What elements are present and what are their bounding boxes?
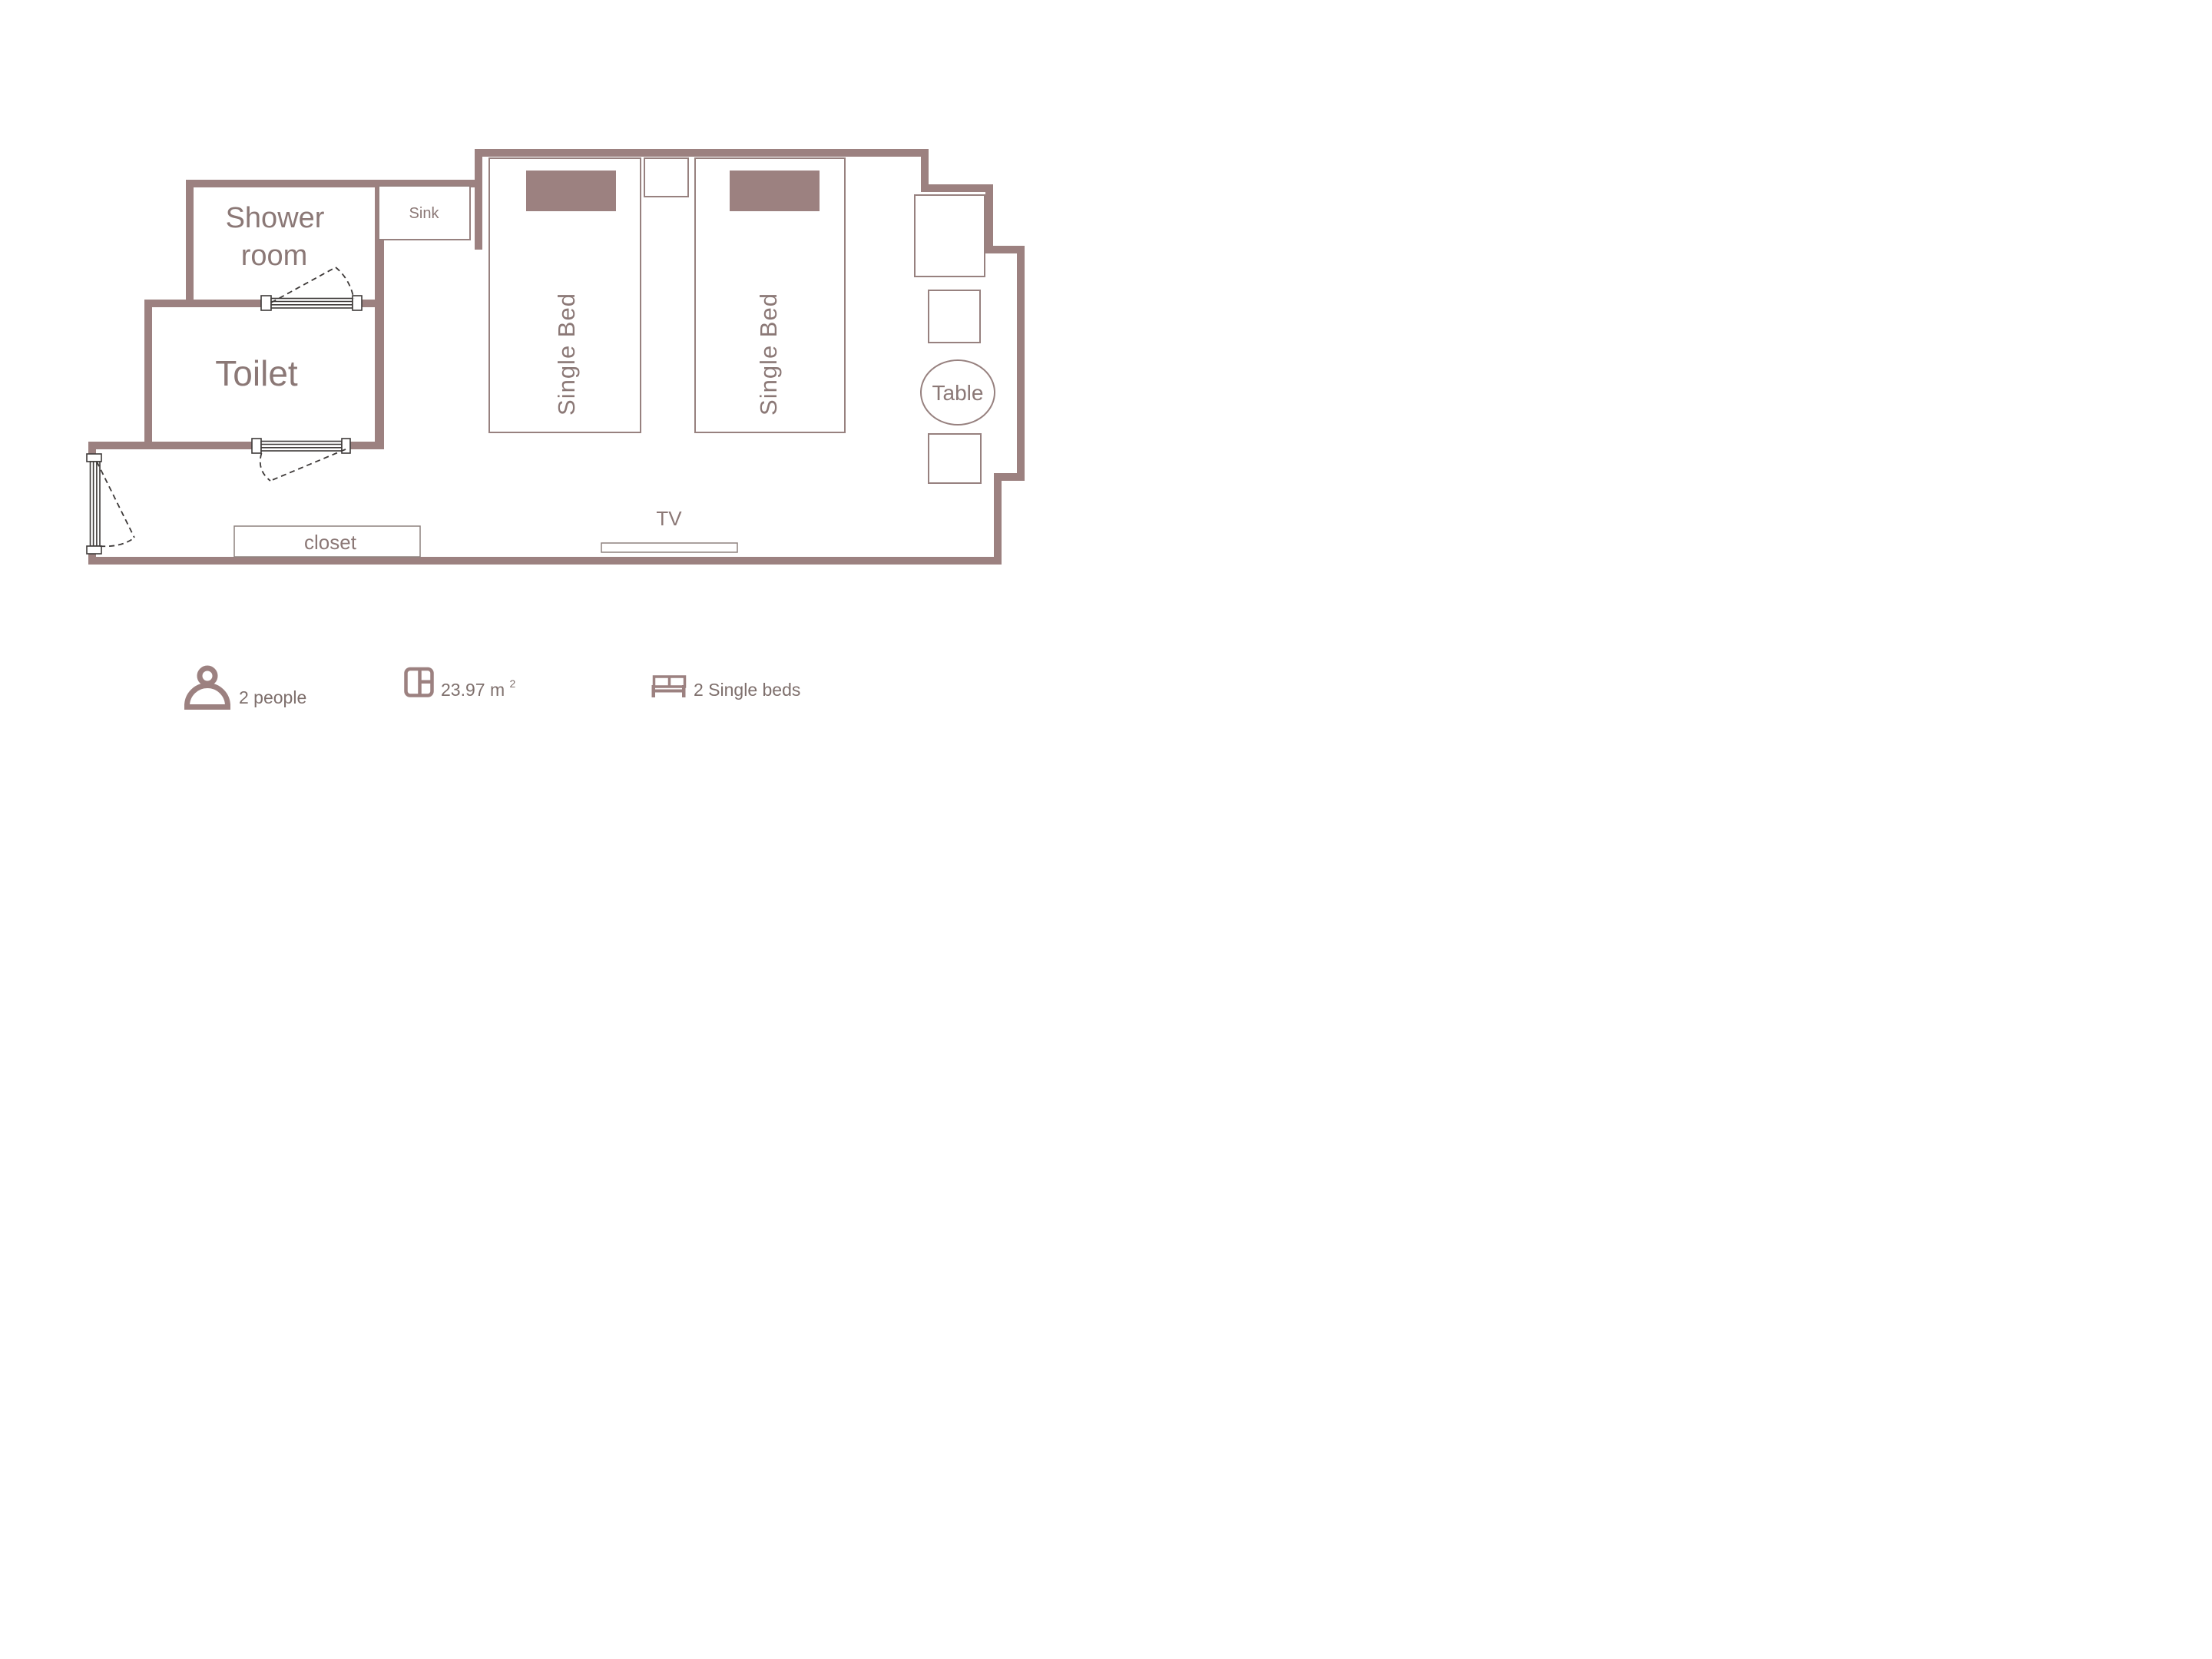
toilet-door-leaf (261, 442, 342, 452)
doors (87, 296, 362, 554)
wall-main-left (475, 149, 482, 250)
shower-room-label-line2: room (241, 240, 308, 272)
bed-icon-leg-left (652, 685, 656, 697)
shower-room-label-line1: Shower (226, 202, 325, 234)
bed-icon-mattress-bar (655, 690, 682, 693)
floor-plan-drawing: Shower room Toilet Sink Single Bed Singl… (0, 0, 1106, 829)
legend-area-value: 23.97 (441, 680, 485, 700)
wall-toilet-bottom-left (88, 442, 252, 449)
legend-beds-label: 2 Single beds (694, 680, 800, 700)
toilet-door-swing-line (270, 449, 346, 481)
bed-right-pillow (730, 171, 820, 211)
legend: 2 people 23.97 m 2 2 Single beds (184, 668, 800, 707)
wall-hall-left-lower (88, 554, 96, 565)
legend-area-unit-exponent: 2 (510, 677, 516, 690)
wall-bottom (88, 557, 1002, 565)
shower-door-swing-arc (336, 267, 354, 299)
legend-area-label: 23.97 m 2 (441, 677, 516, 700)
table-label: Table (932, 381, 984, 405)
wall-divider-left (144, 300, 271, 307)
bed-left-pillow (526, 171, 616, 211)
entrance-door-swing-arc (100, 538, 134, 546)
toilet-door-jamb-left (252, 439, 261, 453)
shower-door-leaf (271, 299, 353, 309)
bed-icon-leg-right (682, 685, 686, 697)
wall-lower-right (994, 473, 1002, 565)
sink-label: Sink (409, 205, 440, 222)
tv-stand (601, 543, 737, 552)
wall-step1-horizontal (921, 184, 993, 192)
toilet-label: Toilet (215, 353, 298, 393)
window-bay-unit-large (915, 195, 985, 276)
chair-lower (929, 434, 981, 483)
bed-icon (652, 677, 686, 697)
tv-label: TV (656, 507, 682, 530)
wall-step2-vertical (985, 184, 993, 253)
wall-toilet-left (144, 300, 152, 449)
shower-door-jamb-right (353, 296, 362, 310)
bed-left-label: Single Bed (553, 293, 580, 416)
closet-label: closet (304, 531, 357, 554)
shower-door-swing-line (271, 267, 336, 303)
bed-right-label: Single Bed (755, 293, 782, 416)
wall-bay-right (1017, 246, 1025, 481)
entrance-door-jamb-bottom (87, 546, 101, 554)
legend-area-unit: m (490, 680, 505, 700)
furniture-outlines (379, 158, 995, 483)
floor-plan-icon (406, 669, 432, 696)
shower-door-jamb-left (261, 296, 271, 310)
person-icon-head (200, 668, 215, 684)
entrance-door-jamb-top (87, 454, 101, 462)
entrance-door-leaf (91, 462, 101, 546)
wall-main-top (475, 149, 929, 157)
chair-upper (929, 290, 980, 343)
person-icon-body (187, 686, 228, 707)
nightstand (644, 158, 688, 197)
toilet-door-swing-arc (260, 453, 270, 481)
person-icon (184, 668, 230, 707)
entrance-door-swing-line (97, 462, 134, 538)
floor-plan-page: Shower room Toilet Sink Single Bed Singl… (0, 0, 1106, 829)
legend-occupancy-label: 2 people (239, 687, 306, 707)
wall-shower-left (186, 180, 194, 307)
door-swings (97, 267, 354, 546)
